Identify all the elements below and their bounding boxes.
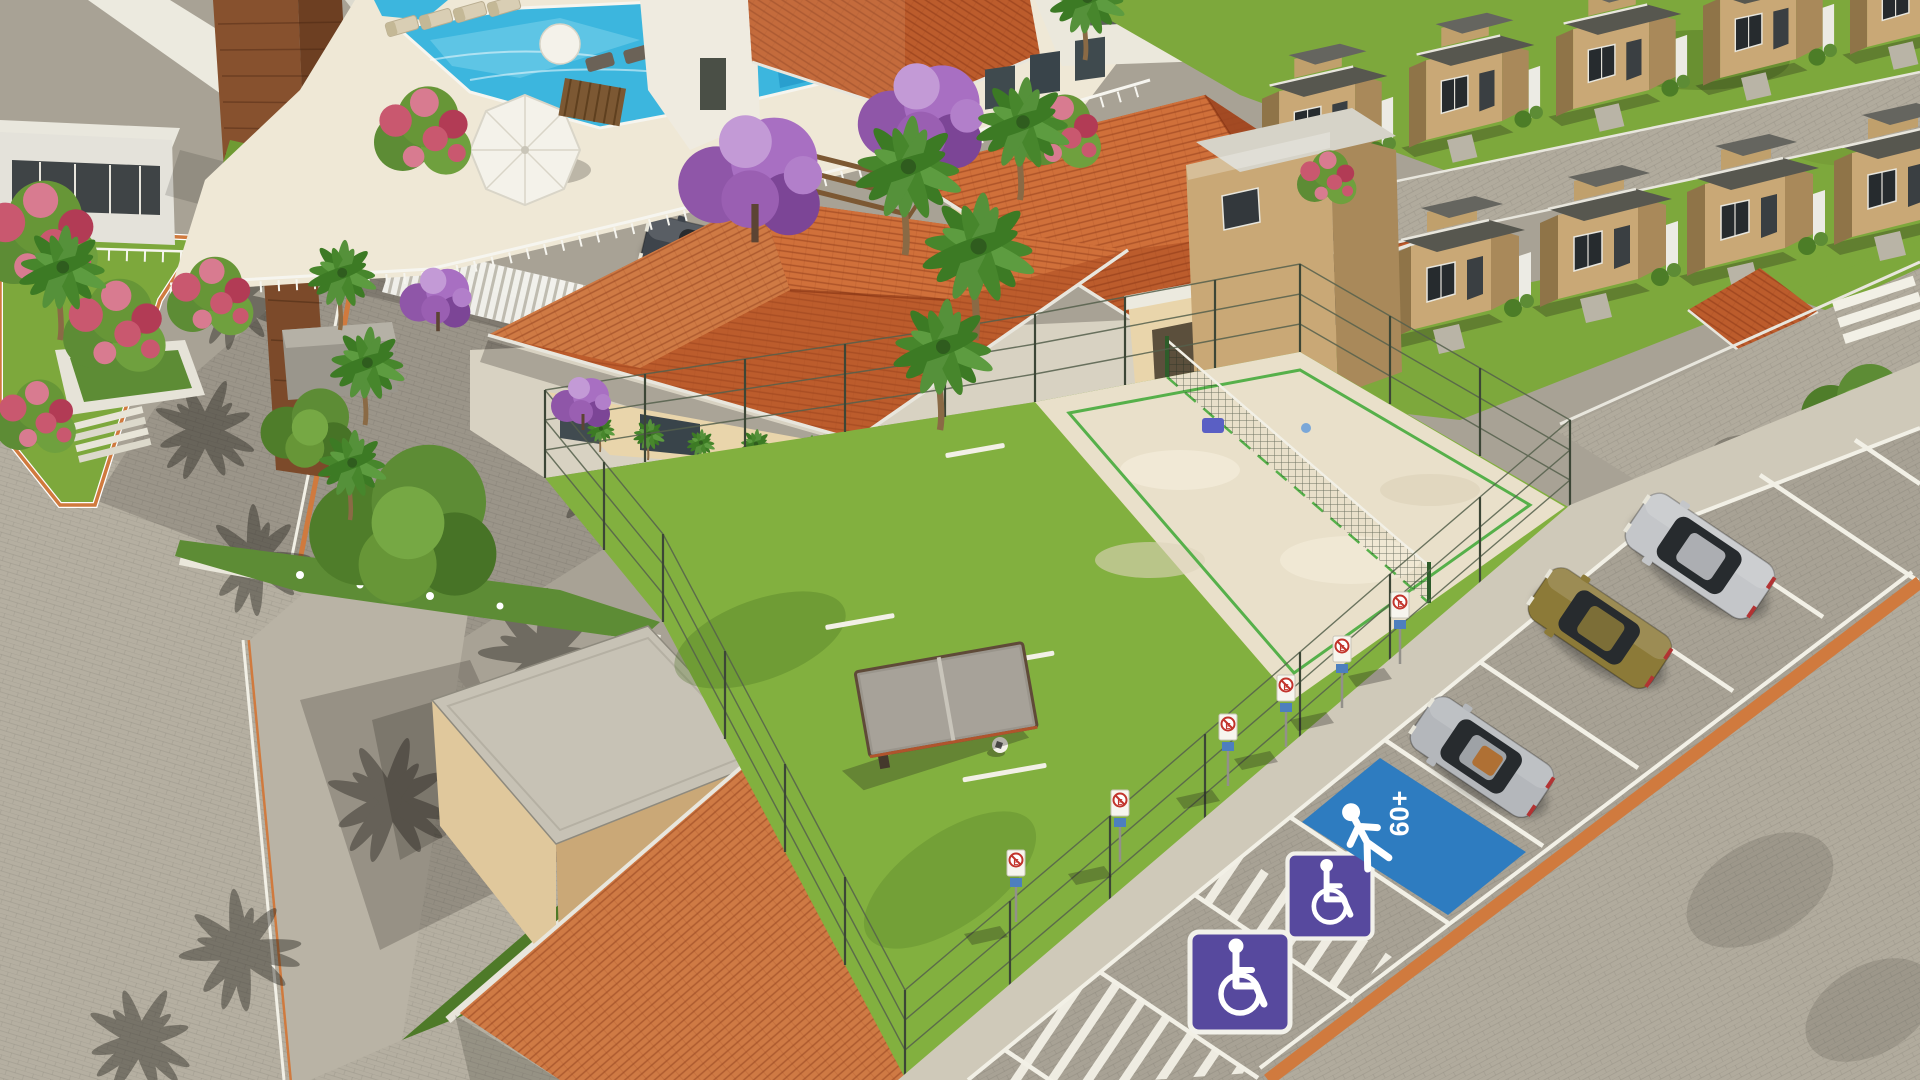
aerial-condominium-render: 60+ E E E E E E	[0, 0, 1920, 1080]
cooler-box	[1202, 418, 1224, 433]
sign-letter: E	[1117, 798, 1123, 807]
senior-space-label: 60+	[1384, 791, 1414, 837]
sign-letter: E	[1397, 600, 1403, 609]
sign-letter: E	[1225, 722, 1231, 731]
sign-letter: E	[1339, 644, 1345, 653]
sign-letter: E	[1013, 858, 1019, 867]
render-stage: 60+ E E E E E E	[0, 0, 1920, 1080]
sign-letter: E	[1283, 683, 1289, 692]
